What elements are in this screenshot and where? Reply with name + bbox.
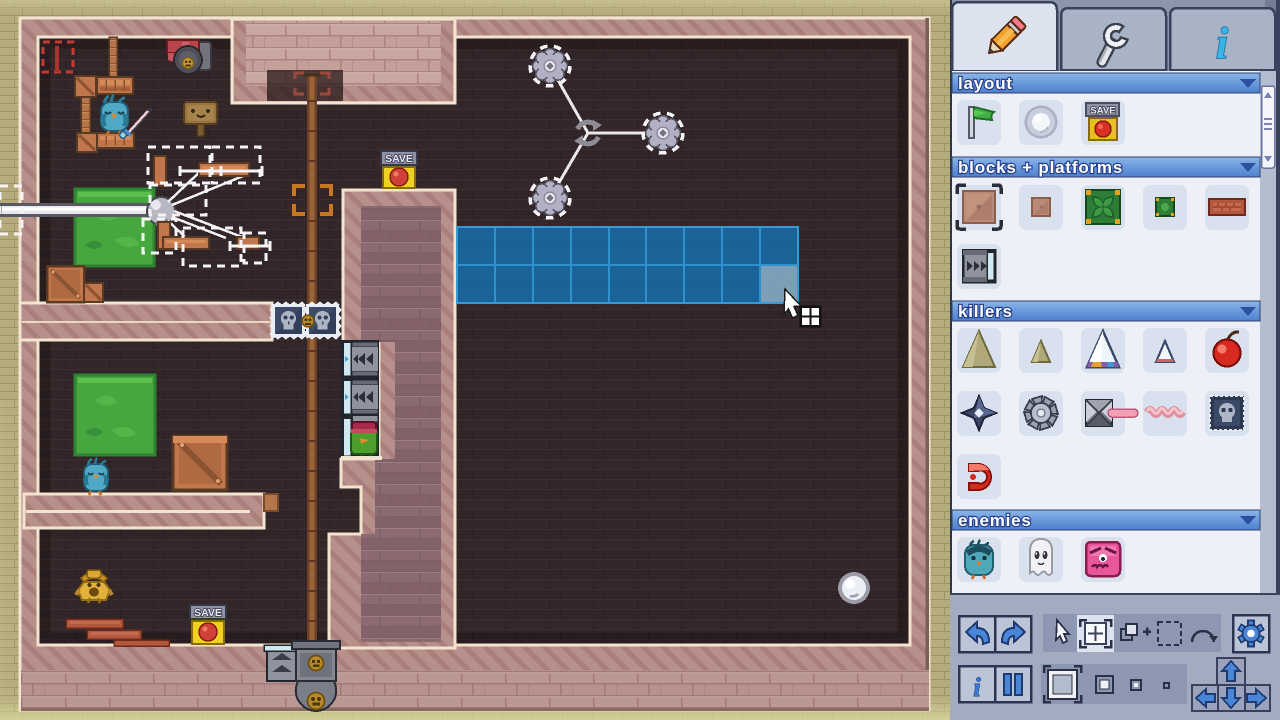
- svg-text:blocks + platforms: blocks + platforms: [958, 158, 1123, 177]
- svg-text:layout: layout: [958, 74, 1013, 93]
- svg-text:enemies: enemies: [958, 511, 1032, 530]
- svg-text:killers: killers: [958, 302, 1013, 321]
- svg-text:SAVE: SAVE: [1090, 106, 1115, 117]
- svg-text:i: i: [1216, 19, 1229, 68]
- svg-text:SAVE: SAVE: [194, 607, 222, 619]
- svg-text:i: i: [973, 673, 981, 702]
- svg-text:SAVE: SAVE: [385, 153, 413, 165]
